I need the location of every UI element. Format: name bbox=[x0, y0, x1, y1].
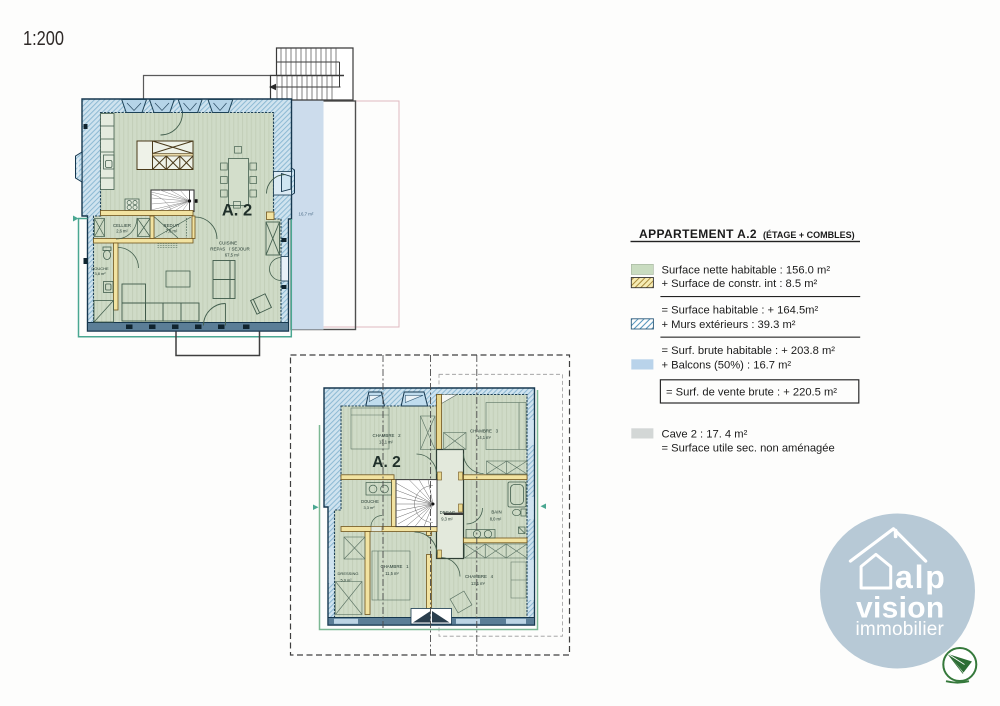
svg-text:DRESSING: DRESSING bbox=[338, 571, 359, 576]
svg-text:16,7 m²: 16,7 m² bbox=[299, 212, 314, 217]
svg-text:A. 2: A. 2 bbox=[372, 454, 400, 471]
svg-text:+ Balcons (50%) : 16.7 m²: + Balcons (50%) : 16.7 m² bbox=[662, 360, 792, 372]
svg-text:5,9 m²: 5,9 m² bbox=[340, 578, 352, 583]
svg-text:CHAMBRE 1: CHAMBRE 1 bbox=[380, 564, 409, 569]
svg-text:3,8 m²: 3,8 m² bbox=[94, 271, 106, 276]
svg-text:CELLIER: CELLIER bbox=[113, 223, 131, 228]
svg-text:1:200: 1:200 bbox=[23, 28, 64, 50]
svg-text:13,1 m²: 13,1 m² bbox=[379, 440, 394, 445]
svg-text:9,3 m²: 9,3 m² bbox=[441, 517, 453, 522]
svg-text:APPARTEMENT A.2: APPARTEMENT A.2 bbox=[639, 227, 757, 241]
svg-text:Surface nette habitable : 156.: Surface nette habitable : 156.0 m² bbox=[662, 265, 831, 277]
svg-text:CHAMBRE 3: CHAMBRE 3 bbox=[470, 429, 499, 434]
svg-text:REDUIT: REDUIT bbox=[164, 223, 180, 228]
svg-text:67,5 m²: 67,5 m² bbox=[225, 253, 240, 258]
svg-text:DEGAG.: DEGAG. bbox=[440, 510, 457, 515]
svg-text:8,0 m²: 8,0 m² bbox=[490, 517, 502, 522]
svg-text:= Surf. de vente brute : + 220: = Surf. de vente brute : + 220.5 m² bbox=[666, 387, 837, 399]
svg-text:= Surf. brute habitable : + 20: = Surf. brute habitable : + 203.8 m² bbox=[662, 345, 836, 357]
svg-text:+ Murs extérieurs : 39.3 m²: + Murs extérieurs : 39.3 m² bbox=[662, 319, 796, 331]
svg-text:7,8 m²: 7,8 m² bbox=[166, 228, 178, 233]
svg-text:immobilier: immobilier bbox=[856, 619, 945, 640]
svg-text:14,1 m²: 14,1 m² bbox=[477, 435, 492, 440]
svg-text:CHAMBRE 4: CHAMBRE 4 bbox=[465, 574, 494, 579]
svg-text:Cave 2 : 17. 4 m²: Cave 2 : 17. 4 m² bbox=[662, 429, 748, 441]
svg-text:DOUCHE: DOUCHE bbox=[361, 499, 379, 504]
svg-text:(ÉTAGE + COMBLES): (ÉTAGE + COMBLES) bbox=[763, 230, 855, 240]
svg-text:3,3 m²: 3,3 m² bbox=[363, 505, 375, 510]
svg-text:CHAMBRE 2: CHAMBRE 2 bbox=[372, 433, 401, 438]
svg-text:BAIN: BAIN bbox=[491, 510, 501, 515]
svg-text:= Surface utile sec. non aména: = Surface utile sec. non aménagée bbox=[662, 443, 835, 455]
svg-text:+ Surface de constr. int : 8.5: + Surface de constr. int : 8.5 m² bbox=[662, 278, 818, 290]
svg-text:2,6 m²: 2,6 m² bbox=[116, 228, 128, 233]
svg-text:= Surface habitable : + 164.5m: = Surface habitable : + 164.5m² bbox=[662, 305, 819, 317]
svg-text:11,5 m²: 11,5 m² bbox=[385, 571, 399, 576]
svg-text:A. 2: A. 2 bbox=[222, 202, 252, 220]
svg-text:13,1 m²: 13,1 m² bbox=[471, 581, 486, 586]
svg-text:alp: alp bbox=[895, 559, 947, 595]
svg-text:REPAS / SEJOUR: REPAS / SEJOUR bbox=[210, 247, 250, 252]
svg-text:CUISINE: CUISINE bbox=[219, 241, 237, 246]
